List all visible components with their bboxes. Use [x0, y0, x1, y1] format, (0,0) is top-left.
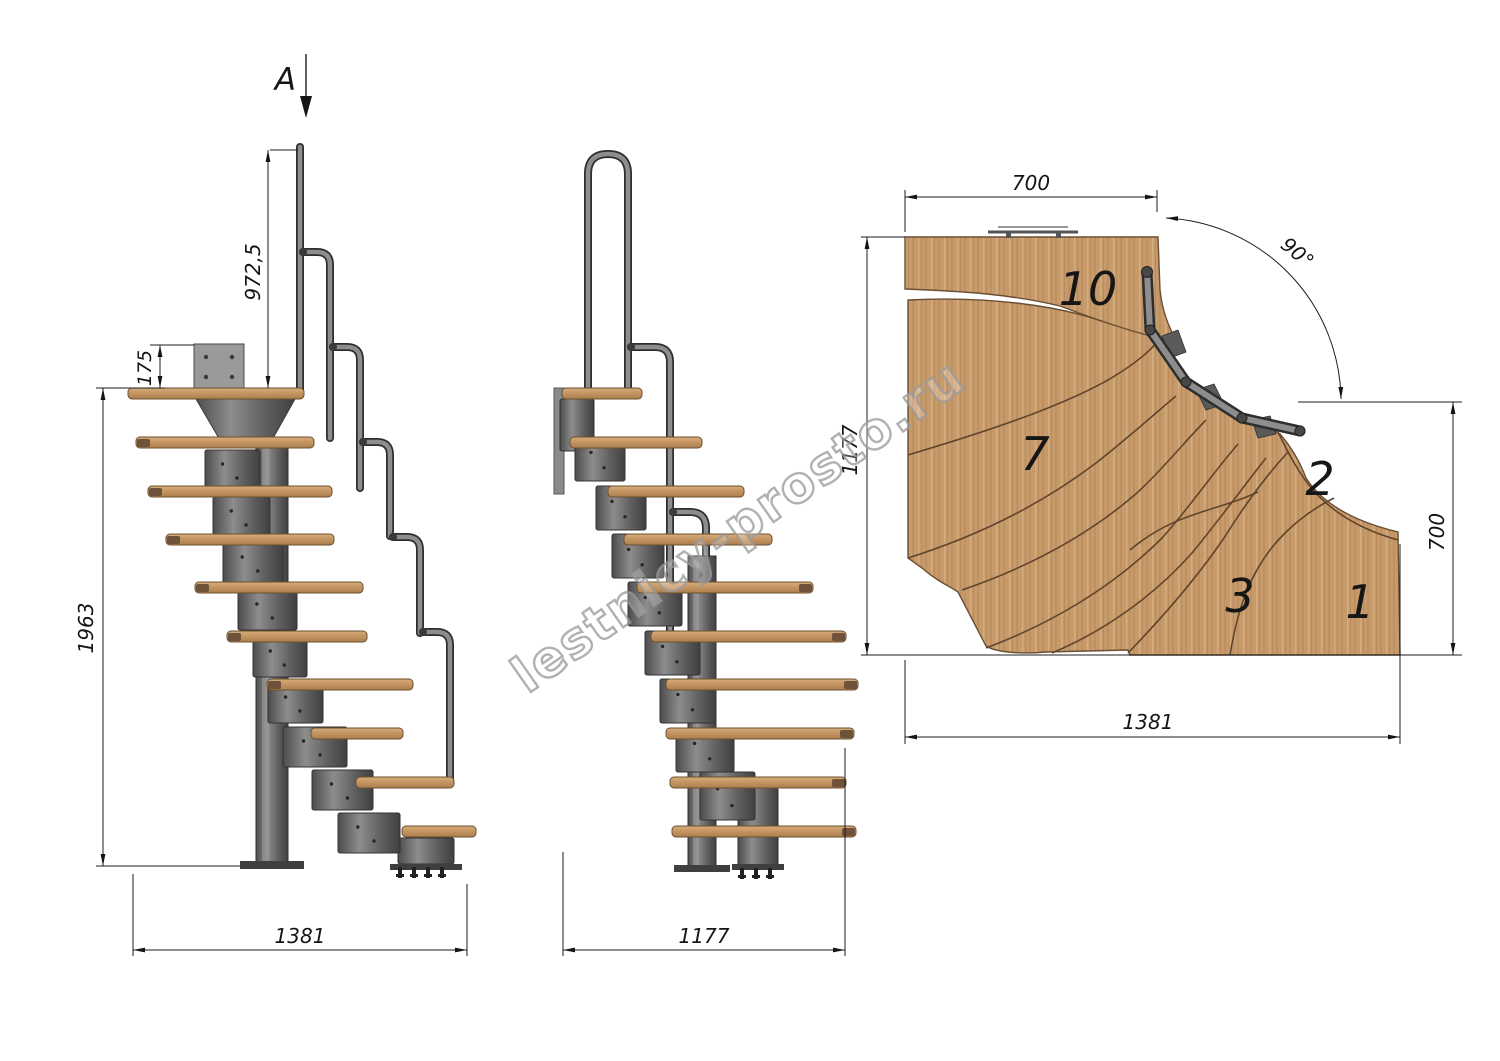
side-modules — [205, 450, 400, 853]
label-total-height: 1963 — [74, 603, 98, 654]
spine-module — [312, 770, 373, 810]
tread-label-1: 1 — [1345, 575, 1374, 629]
staircase-drawing: 10 7 2 3 1 — [0, 0, 1500, 1061]
wall-mount-plate — [194, 344, 244, 389]
tread — [356, 777, 454, 788]
label-plan-right-depth: 700 — [1425, 513, 1449, 551]
rail-collar — [299, 248, 307, 256]
tread — [267, 679, 413, 690]
side-elevation-view — [128, 147, 476, 878]
tread — [128, 388, 304, 399]
handrail-tube — [393, 537, 420, 633]
handrail-tube — [333, 347, 360, 488]
tread — [166, 534, 334, 545]
tread — [672, 826, 856, 837]
rail-collar — [419, 628, 427, 636]
tread — [562, 388, 642, 399]
tread — [666, 728, 854, 739]
anchor-bolts — [738, 868, 774, 879]
tread-label-3: 3 — [1225, 569, 1254, 623]
label-total-run: 1381 — [275, 924, 326, 948]
rail-collar — [359, 438, 367, 446]
tread-label-10: 10 — [1059, 262, 1118, 316]
column-base-plate — [674, 865, 730, 872]
spine-module — [338, 813, 400, 853]
tread — [670, 777, 846, 788]
tread — [402, 826, 476, 837]
spine-module — [205, 450, 260, 490]
spine-module — [253, 637, 307, 677]
label-plate-offset: 175 — [134, 350, 156, 386]
tread — [227, 631, 367, 642]
tread — [311, 728, 403, 739]
drawing-svg: 10 7 2 3 1 — [0, 0, 1500, 1061]
plan-view: 10 7 2 3 1 — [905, 227, 1400, 655]
label-front-depth: 1177 — [679, 924, 730, 948]
rail-collar — [669, 508, 677, 516]
tread — [570, 437, 702, 448]
spine-module — [238, 590, 297, 630]
tread — [136, 437, 314, 448]
handrail-tube — [588, 154, 628, 390]
label-handrail-height: 972,5 — [241, 243, 265, 300]
handrail-tube — [363, 442, 390, 536]
tread — [148, 486, 332, 497]
rail-collar — [329, 343, 337, 351]
tread — [666, 679, 858, 690]
tread — [651, 631, 846, 642]
tread-label-2: 2 — [1305, 452, 1334, 506]
tread — [608, 486, 744, 497]
rail-collar — [389, 533, 397, 541]
rail-collar — [627, 343, 635, 351]
dim-turn-angle-arc — [1166, 218, 1341, 399]
column-base-plate — [240, 861, 304, 869]
label-plan-bottom-width: 1381 — [1123, 710, 1174, 734]
top-module-funnel — [196, 399, 295, 440]
spine-module — [213, 497, 270, 537]
tread — [195, 582, 363, 593]
section-arrow — [300, 54, 312, 118]
handrail-tube — [303, 252, 330, 438]
handrail-tube — [423, 632, 450, 782]
tread-label-7: 7 — [1020, 427, 1049, 481]
spine-module — [223, 543, 283, 583]
section-label: A — [273, 62, 296, 98]
label-plan-top-width: 700 — [1012, 171, 1050, 195]
bottom-module — [398, 838, 454, 864]
